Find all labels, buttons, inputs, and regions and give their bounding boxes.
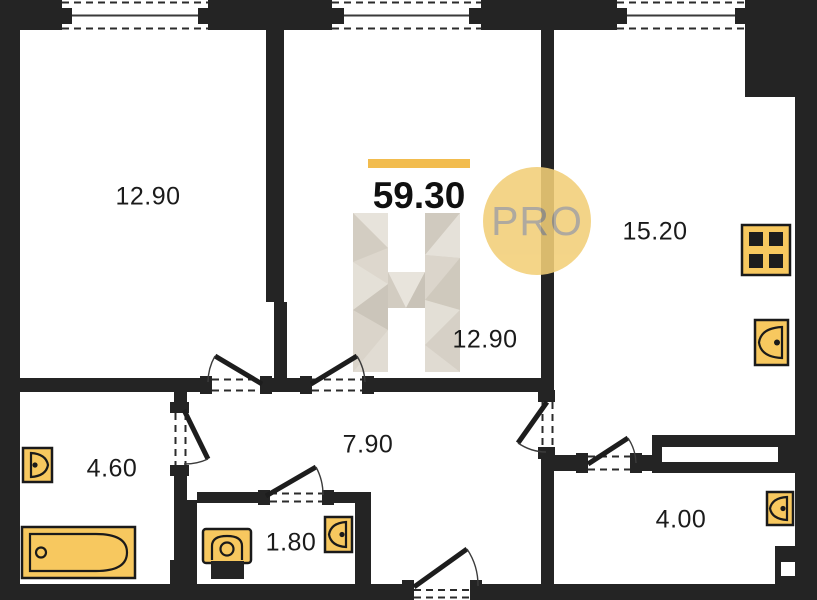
storage-sink-icon [767,492,793,525]
total-area-accent-bar [368,159,470,168]
builder-logo-watermark [353,213,460,372]
bathtub-icon [22,527,135,578]
wardrobe [652,435,795,473]
bathroom-sink-icon [23,448,52,482]
room-area-label-kitchen: 15.20 [622,218,687,247]
room-area-label-bathroom: 4.60 [87,455,138,484]
door-wc [266,467,323,502]
entrance-door [414,549,478,600]
door-living-room-1 [208,356,262,391]
window-kitchen [617,3,745,29]
pro-badge-label: PRO [491,198,583,245]
kitchen-sink-icon [755,320,788,365]
room-area-label-living-room-1: 12.90 [115,183,180,212]
kitchen-stove-icon [742,225,790,275]
toilet-icon [203,529,251,579]
door-storage [588,438,636,470]
room-area-label-wc: 1.80 [266,529,317,558]
room-area-label-hallway: 7.90 [343,431,394,460]
door-kitchen [518,402,553,452]
pro-badge: PRO [483,167,591,275]
wc-sink-icon [325,517,352,552]
door-bathroom [176,410,209,465]
total-area-value: 59.30 [354,177,484,214]
room-area-label-living-room-2: 12.90 [452,326,517,355]
window-living-room-2 [332,3,481,29]
room-area-label-storage: 4.00 [656,506,707,535]
window-living-room-1 [62,3,208,29]
floor-plan: 12.90 12.90 15.20 4.60 7.90 1.80 4.00 59… [0,0,817,600]
